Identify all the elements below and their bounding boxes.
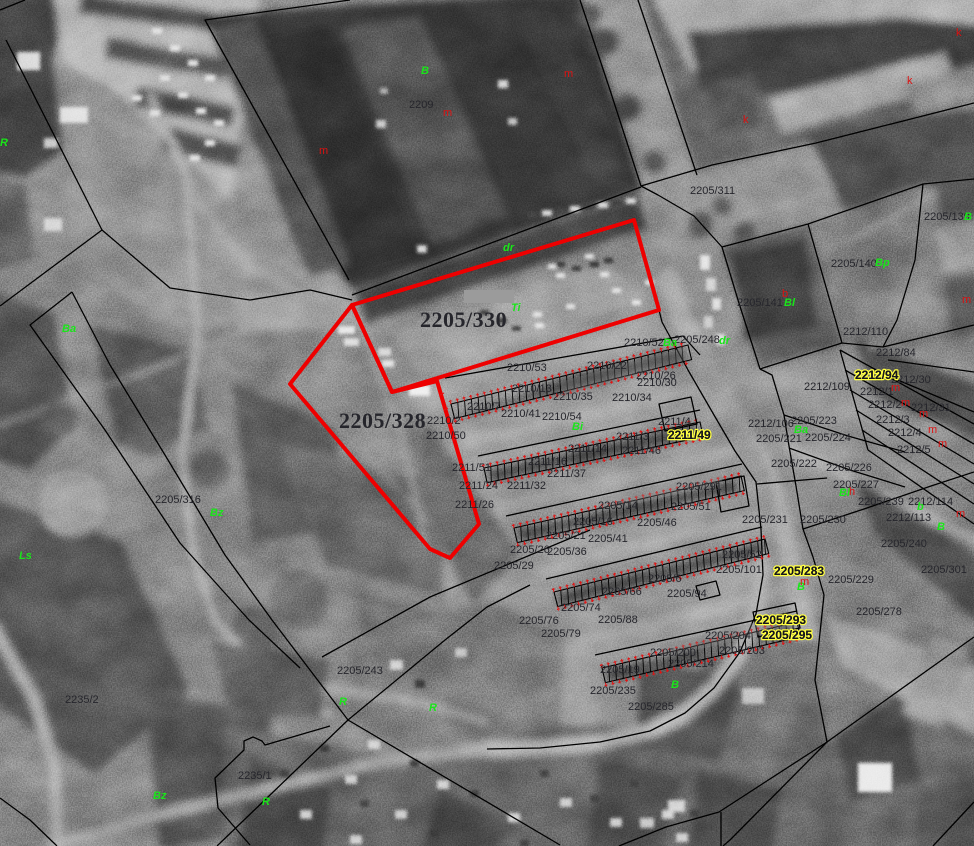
svg-text:2211/32: 2211/32: [507, 480, 546, 492]
svg-text:2205/226: 2205/226: [826, 462, 872, 474]
svg-text:m: m: [962, 294, 971, 306]
svg-text:2205/293: 2205/293: [756, 613, 806, 627]
svg-text:2212/4: 2212/4: [888, 427, 922, 439]
svg-text:m: m: [891, 382, 900, 394]
svg-text:Bp: Bp: [875, 257, 890, 269]
svg-text:m: m: [901, 397, 910, 409]
svg-text:2205/52: 2205/52: [722, 549, 762, 561]
svg-text:2212/114: 2212/114: [908, 496, 953, 508]
svg-text:2205/328: 2205/328: [339, 408, 426, 433]
svg-text:2205/224: 2205/224: [805, 432, 851, 444]
svg-text:2205/330: 2205/330: [420, 307, 507, 332]
svg-text:2211/37: 2211/37: [547, 468, 586, 480]
svg-text:2212/109: 2212/109: [804, 381, 850, 393]
svg-text:2205/203: 2205/203: [719, 645, 765, 657]
svg-text:m: m: [956, 508, 965, 520]
svg-text:2210/7: 2210/7: [467, 401, 501, 413]
svg-text:m: m: [443, 107, 452, 119]
svg-text:2211/24: 2211/24: [459, 480, 498, 492]
svg-text:2211/3: 2211/3: [616, 431, 649, 443]
svg-text:2205/248: 2205/248: [674, 334, 720, 346]
svg-text:2212/5: 2212/5: [897, 444, 931, 456]
svg-text:B: B: [421, 65, 429, 77]
svg-text:Ba: Ba: [794, 424, 808, 436]
svg-text:2205/19: 2205/19: [600, 664, 640, 676]
svg-text:2212/2: 2212/2: [868, 399, 902, 411]
svg-text:2205/295: 2205/295: [762, 628, 812, 642]
svg-text:k: k: [743, 114, 749, 126]
svg-text:2205/235: 2205/235: [590, 685, 636, 697]
svg-text:2205/14: 2205/14: [598, 500, 638, 512]
svg-text:2205/6: 2205/6: [648, 573, 682, 585]
svg-text:2205/141: 2205/141: [737, 297, 783, 309]
svg-text:b: b: [782, 288, 788, 300]
svg-text:2210/52: 2210/52: [624, 337, 664, 349]
svg-text:Bi: Bi: [572, 421, 584, 433]
svg-text:2209: 2209: [409, 99, 433, 111]
svg-text:k: k: [907, 75, 913, 87]
svg-text:2210/41: 2210/41: [501, 408, 541, 420]
svg-text:Ls: Ls: [19, 550, 32, 562]
svg-text:2205/16: 2205/16: [573, 516, 613, 528]
svg-text:R: R: [429, 702, 437, 714]
svg-text:k: k: [956, 27, 962, 39]
svg-text:Ba: Ba: [663, 337, 677, 349]
svg-text:m: m: [564, 68, 573, 80]
svg-text:2205/46: 2205/46: [637, 517, 677, 529]
svg-text:2205/74: 2205/74: [561, 602, 601, 614]
svg-text:2205/316: 2205/316: [155, 494, 201, 506]
svg-text:R: R: [339, 696, 347, 708]
svg-text:2211/4: 2211/4: [658, 416, 691, 428]
svg-text:2235/2: 2235/2: [65, 694, 99, 706]
svg-text:2211/49: 2211/49: [668, 428, 711, 442]
svg-text:2205/285: 2205/285: [628, 701, 674, 713]
svg-text:2212/94: 2212/94: [855, 368, 899, 382]
svg-text:2205/230: 2205/230: [800, 514, 846, 526]
svg-text:2205/139: 2205/139: [924, 211, 970, 223]
svg-text:B: B: [671, 679, 679, 691]
svg-text:2212/1: 2212/1: [860, 386, 894, 398]
svg-text:dr: dr: [719, 335, 731, 347]
svg-text:2210/22: 2210/22: [587, 360, 627, 372]
svg-text:2205/231: 2205/231: [742, 514, 788, 526]
svg-text:2205/243: 2205/243: [337, 665, 383, 677]
svg-text:2205/21: 2205/21: [546, 530, 586, 542]
svg-text:2212/110: 2212/110: [843, 326, 888, 338]
svg-text:2205/291: 2205/291: [676, 481, 722, 493]
svg-text:b: b: [917, 501, 924, 513]
svg-text:B: B: [964, 211, 972, 223]
svg-text:2210/35: 2210/35: [553, 391, 593, 403]
svg-text:2205/101: 2205/101: [716, 564, 762, 576]
svg-text:2205/214: 2205/214: [668, 658, 714, 670]
svg-text:2205/79: 2205/79: [541, 628, 581, 640]
svg-text:2205/239: 2205/239: [858, 496, 904, 508]
svg-text:2211/51: 2211/51: [452, 462, 491, 474]
svg-text:2205/26: 2205/26: [510, 544, 550, 556]
svg-text:dr: dr: [503, 242, 515, 254]
svg-text:2211/16: 2211/16: [528, 456, 567, 468]
svg-text:Ti: Ti: [511, 302, 522, 314]
svg-text:2205/229: 2205/229: [828, 574, 874, 586]
svg-text:2210/2: 2210/2: [427, 415, 461, 427]
svg-text:m: m: [919, 408, 928, 420]
svg-text:2212/31: 2212/31: [911, 402, 951, 414]
svg-text:2205/36: 2205/36: [547, 546, 587, 558]
svg-text:2210/50: 2210/50: [426, 430, 466, 442]
svg-text:h: h: [849, 486, 855, 498]
svg-text:B: B: [937, 521, 945, 533]
svg-text:2205/240: 2205/240: [881, 538, 927, 550]
svg-text:2212/3: 2212/3: [876, 414, 910, 426]
svg-text:m: m: [928, 424, 937, 436]
svg-text:2205/283: 2205/283: [774, 564, 824, 578]
svg-text:2205/88: 2205/88: [598, 614, 638, 626]
svg-text:R: R: [0, 137, 8, 149]
svg-text:2210/30: 2210/30: [637, 377, 677, 389]
svg-text:2211/46: 2211/46: [622, 445, 661, 457]
svg-text:2211/14: 2211/14: [568, 443, 607, 455]
svg-text:2212/113: 2212/113: [886, 512, 931, 524]
svg-text:Bz: Bz: [153, 790, 167, 802]
svg-text:2205/41: 2205/41: [588, 533, 628, 545]
svg-text:R: R: [262, 796, 270, 808]
svg-text:2205/301: 2205/301: [921, 564, 967, 576]
svg-text:2205/140: 2205/140: [831, 258, 877, 270]
svg-text:2211/26: 2211/26: [455, 499, 494, 511]
svg-text:2205/51: 2205/51: [671, 501, 711, 513]
svg-text:Bz: Bz: [210, 507, 224, 519]
svg-text:2205/94: 2205/94: [667, 588, 707, 600]
svg-text:2205/222: 2205/222: [771, 458, 817, 470]
svg-text:2210/53: 2210/53: [507, 362, 547, 374]
svg-text:Ba: Ba: [62, 323, 76, 335]
svg-text:m: m: [938, 438, 947, 450]
svg-text:2210/34: 2210/34: [612, 392, 652, 404]
svg-text:2205/278: 2205/278: [856, 606, 902, 618]
svg-text:2205/66: 2205/66: [602, 586, 642, 598]
svg-text:2205/29: 2205/29: [494, 560, 534, 572]
svg-text:2210/13: 2210/13: [512, 383, 552, 395]
svg-text:2205/311: 2205/311: [690, 185, 735, 197]
svg-text:2205/76: 2205/76: [519, 615, 559, 627]
svg-text:2235/1: 2235/1: [238, 770, 272, 782]
svg-text:2205/204: 2205/204: [705, 630, 751, 642]
svg-text:m: m: [319, 145, 328, 157]
svg-text:2212/84: 2212/84: [876, 347, 916, 359]
svg-text:2212/106: 2212/106: [748, 418, 794, 430]
